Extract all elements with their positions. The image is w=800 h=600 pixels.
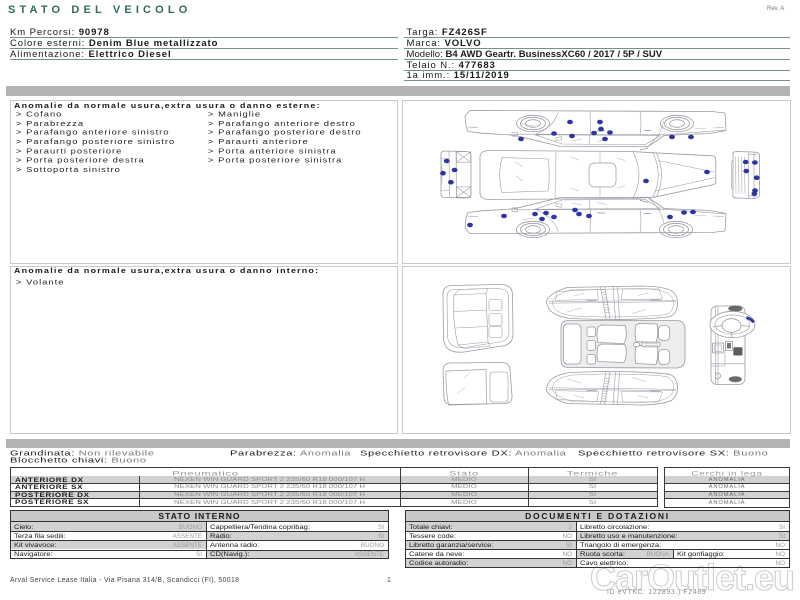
svg-text:D: D <box>715 371 722 382</box>
